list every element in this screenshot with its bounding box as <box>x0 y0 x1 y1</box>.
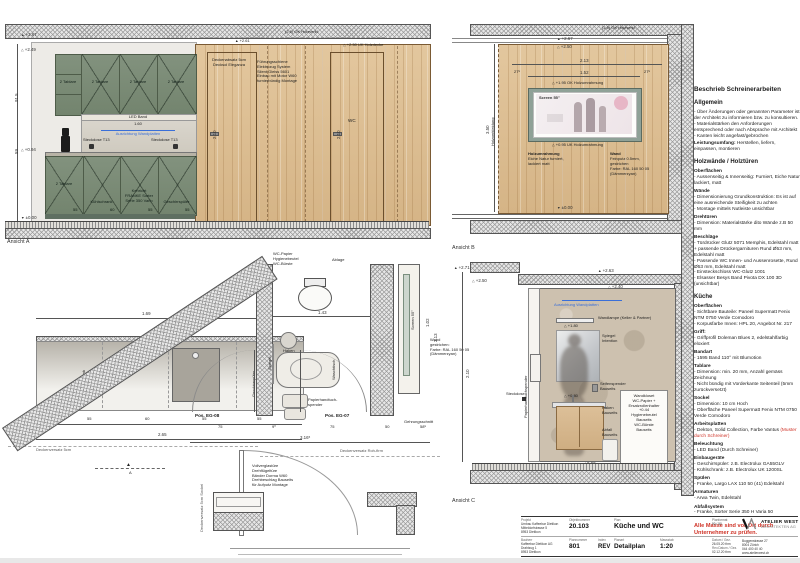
geschirrspueler-label: Geschirrspüler <box>158 200 195 205</box>
poster-circle-icon <box>614 96 628 110</box>
papierhandtuch-label: Papierhandtuchspender <box>524 376 529 418</box>
spec-title: Beschrieb Schreinerarbeiten <box>694 86 800 94</box>
address-line: www.atelierwest.ch <box>742 551 769 555</box>
address-line: 044 400 40 40 <box>742 547 769 551</box>
dim-chain <box>36 424 302 425</box>
ok-holzverkl-line <box>200 37 385 38</box>
abfall-label2: Bauseits <box>602 433 617 438</box>
ok-umrahmung-label: +1.95 OK Holzumrahmung <box>552 81 603 86</box>
titleblock-rule <box>521 556 798 557</box>
deckenversatz-roh-label: Deckenversatz Roh-firm <box>340 449 383 454</box>
plannumber-value: 801 <box>569 543 587 550</box>
dim-line-316 <box>190 442 430 443</box>
tablare-label: 2 Tablare <box>55 80 81 85</box>
date-value: 26.05.20 thm <box>712 542 737 546</box>
dim-55: 55 <box>185 208 189 213</box>
spec-line: - Kühlschrank: z.B. Electrolux UK 1200SL <box>694 468 800 474</box>
side-table-icon <box>280 332 297 349</box>
shelf-line <box>56 94 81 95</box>
wc-door-label: WC <box>348 118 356 123</box>
seg-585: 58⁵ <box>420 425 426 430</box>
level-000: ±0.00 <box>21 215 37 220</box>
spec-line: - Materialstärken den Anforderungen ents… <box>694 122 800 134</box>
wandlampe-label: Wandlampe (Keller & Partner) <box>598 316 651 321</box>
revdate-value: 02.12.20 thm <box>712 550 737 554</box>
seifenspender-label2: Bauseits <box>600 387 615 392</box>
door-note-line: furnierbündig Montage <box>257 79 297 84</box>
umrahmung-line3: lackiert matt <box>528 162 550 167</box>
view-ansicht-a: WC 2 Tablare 2 Tablare 2 Tablare 2 Tabla… <box>5 24 430 240</box>
dim-143: 1.43 <box>318 310 327 315</box>
vanity-cabinet <box>556 406 604 450</box>
dim-55: 55 <box>148 208 152 213</box>
sockel <box>45 214 195 219</box>
ceiling-hatch <box>470 262 520 273</box>
shelf-line <box>56 74 81 75</box>
door-leaf <box>254 350 255 412</box>
dim-213: 2.13 <box>580 58 589 63</box>
ok-holzverkl-label: (2.6) OK Holzverkl. <box>602 26 636 31</box>
poster-text-block <box>547 114 563 122</box>
tablare-label: 2 Tablare <box>81 80 119 85</box>
scale-block: Massstab 1:20 <box>660 538 674 550</box>
dim-275: 27⁵ <box>514 70 520 75</box>
waste-bin-icon <box>602 439 618 461</box>
spiegel-plan-label: Spiegel <box>268 357 273 370</box>
faucet-icon <box>192 352 199 359</box>
poster-figure-icon <box>574 102 582 132</box>
level-271: +2.71 <box>454 265 470 270</box>
project-line: 8953 Dietikon <box>521 530 565 534</box>
tablare-label: 2 Tablare <box>119 80 157 85</box>
plantitle-block: Plan Küche und WC <box>614 518 664 530</box>
ok-holzverkl-label: (2.6) OK Holzverkl. <box>285 30 319 35</box>
spec-line: - Geschirrspüler: z.B. Electrolux GA55GL… <box>694 462 800 468</box>
wc-note: WC-PapierHygienebeutelWC-Bürste <box>273 252 299 266</box>
spec-line: - Griffprofil Doleman Blues 2, edelstahl… <box>694 336 800 348</box>
coffee-machine-icon <box>61 136 70 152</box>
wc-wall-right <box>370 264 394 416</box>
papertowel-dispenser-icon <box>530 354 541 382</box>
counter-divider <box>168 342 169 408</box>
steckdose-label: Steckdose T13 <box>151 138 178 143</box>
direction-arrow-icon <box>562 300 622 301</box>
screen-plan-icon <box>403 274 410 376</box>
tablare-label: 2 Tablare <box>45 182 83 187</box>
plantitle-label: Plan <box>614 518 664 522</box>
dim-line-vertical <box>17 44 18 221</box>
client-line: Drahtzug 1 <box>521 546 565 550</box>
spec-line: - Elsasser Besys Band Pivota DX 100 3D (… <box>694 276 800 288</box>
sideboard-inner-line <box>216 497 261 507</box>
socket-icon <box>89 144 94 149</box>
floor-structure-hatch <box>5 228 431 239</box>
dim-102: 1.02 <box>425 318 430 327</box>
soap-dispenser-icon <box>592 384 598 392</box>
dim-210: 2.10 <box>212 130 217 139</box>
wall-corner-hatch <box>396 505 415 535</box>
seg-55: 55 <box>257 417 261 422</box>
floor-structure-hatch <box>470 470 694 484</box>
dim-316: 3.16⁵ <box>300 435 310 440</box>
spec-line: - Dimension: Materialstärke dito Wände z… <box>694 221 800 233</box>
seg-50: 50 <box>385 425 389 430</box>
coffee-machine-icon <box>62 128 69 136</box>
spec-line: - Arwa Twin, Edelstahl <box>694 496 800 502</box>
steckdose-label: Steckdose T13 <box>83 138 110 143</box>
door-leaf <box>300 350 301 412</box>
section-line <box>95 468 165 469</box>
index-value: REV <box>598 544 610 550</box>
cabinet-unit <box>83 156 121 214</box>
gehrungsschnitt-label: Gehrungsschnitt <box>404 420 433 425</box>
spec-line: - Oberfläche Paneel Supermatt Fenix NTM … <box>694 408 800 420</box>
holzverkleidung-label: Holzverkleidung <box>491 118 496 146</box>
spec-line: - Montage mittels Nutleiste unsichtbar <box>694 207 800 213</box>
screen-plan-label: Screen 55" <box>411 310 416 330</box>
dim-160: 1.60 <box>81 122 195 127</box>
date-block: Datum / Gez. 26.05.20 thm Rev.Datum / Ge… <box>712 538 737 554</box>
building-wall-strip <box>681 24 694 496</box>
haken-label2: Bauseits <box>602 411 617 416</box>
spec-blocks: Allgemein- Über Änderungen oder genannte… <box>694 100 800 538</box>
project-block: Projekt Umbau Kaffeebar DietikonMitteldo… <box>521 518 565 534</box>
glass-door-note-line: für Aufputz Montage <box>252 483 293 488</box>
view-floor-plan: Kühlschrank Geschirrspüler 2.11 1.69 27 … <box>0 252 452 558</box>
screen-size-label: Screen 55" <box>539 96 560 101</box>
client-line: 8953 Dietikon <box>521 550 565 554</box>
spec-line: - Dimension: min. 20 mm, Anzahl gemäss Z… <box>694 370 800 382</box>
spec-line: - Nicht bündig mit Vorderkante Seitentei… <box>694 382 800 394</box>
seg-75: 75 <box>330 425 334 430</box>
level-261: +2.61 <box>235 39 250 44</box>
spec-line: - Franke, Largo LAX 110 50 (41) Edelstah… <box>694 482 800 488</box>
plannumber-block: Plannummer 801 <box>569 538 587 550</box>
spec-line: - Passende WC Innen- und Aussenrosette, … <box>694 259 800 271</box>
door-swing-arc <box>300 350 367 412</box>
cabinet-unit <box>158 156 196 214</box>
section-marker-icon: ▲ <box>126 462 131 468</box>
project-line: Umbau Kaffeebar Dietikon <box>521 522 565 526</box>
seg-55: 55 <box>87 417 91 422</box>
spec-line: - Dimensionierung Grundkonstruktion: Es … <box>694 195 800 207</box>
poster-figure-icon <box>599 106 606 132</box>
uk-umrahmung-label: +0.95 UK Holzumrahmung <box>552 143 603 148</box>
level-267: +2.67 <box>557 36 573 41</box>
dim-152: 1.52 <box>580 70 589 75</box>
ceiling-hatch <box>518 274 694 285</box>
spec-line: - Über Änderungen oder genannten Paramet… <box>694 110 800 122</box>
address-line: 8004 Zürich <box>742 543 769 547</box>
plantype-block: Planart Detailplan <box>614 538 645 550</box>
plannumber-label: Plannummer <box>569 538 587 542</box>
dim-line-265 <box>36 439 302 440</box>
section-label-a: A <box>129 471 132 476</box>
level-250: +2.50 <box>472 278 487 283</box>
dim-55: 55 <box>73 208 77 213</box>
spec-line: Alle Masse sind vor Ort durch Unternehme… <box>694 523 800 538</box>
kehricht-label3: Serie 350 Vario <box>120 199 158 204</box>
dim-line-152 <box>528 76 640 77</box>
view-label-b: Ansicht B <box>452 245 475 251</box>
spec-line: Holzwände / Holztüren <box>694 159 800 166</box>
deckenversatz-line2 <box>260 456 440 457</box>
view-ansicht-b: Screen 55" +2.67 +2.50 (2.6) OK Holzverk… <box>452 24 685 254</box>
tablare-label: 2 Tablare <box>157 80 195 85</box>
seg-75: 75 <box>218 425 222 430</box>
spec-line: - Korpusfarbe Innen: HPL 20, Angebot Nr.… <box>694 322 800 328</box>
poster-figure-icon <box>586 98 595 132</box>
panel-seam <box>305 46 306 222</box>
spiegel-label2: Intention <box>602 339 617 344</box>
date-label: Datum / Gez. <box>712 538 737 542</box>
level-240: +2.40 <box>608 284 623 289</box>
level-249: +2.49 <box>21 47 36 52</box>
ausrichtung-label: Ausrichtung Wandplatten <box>554 303 599 308</box>
level-094: +0.94 <box>21 147 36 152</box>
revdate-label: Rev.Datum / Gez. <box>712 546 737 550</box>
spec-line: - Franke, Sorter Serie 350 H Varia 50 <box>694 510 800 516</box>
view-ansicht-c: Ausrichtung Wandplatten Wandlampe (Kelle… <box>452 258 692 508</box>
index-label: Index <box>598 538 610 542</box>
floor-line <box>452 214 667 219</box>
spec-line: - Kanten leicht angefast/gebrochen <box>694 134 800 140</box>
dim-915: 91.5 <box>14 93 19 102</box>
spec-line: - LED Band (Durch Schreiner) <box>694 448 800 454</box>
dim-60: 60 <box>110 208 114 213</box>
dim-line-213 <box>512 64 662 65</box>
level-000: ±0.00 <box>557 205 573 210</box>
view-label-a: Ansicht A <box>7 239 29 245</box>
view-label-c: Ansicht C <box>452 498 475 504</box>
ablage-label: Ablage <box>332 258 344 263</box>
dim-169: 1.69 <box>142 311 151 316</box>
seg-60: 60 <box>145 417 149 422</box>
tap-icon <box>572 395 574 402</box>
deckenabsatz-label2: Decksol Eleganza <box>203 63 255 68</box>
client-block: Bauherr Kaffeebar Dietikon AGDrahtzug 18… <box>521 538 565 554</box>
person-silhouette <box>560 346 588 398</box>
specification-column: Beschrieb Schreinerarbeiten Allgemein- Ü… <box>694 86 800 538</box>
vanity-divider <box>579 407 580 447</box>
spec-line: - Sichtbare Bauteile: Paneel Supermatt F… <box>694 310 800 322</box>
scale-value: 1:20 <box>660 543 674 550</box>
spec-line: - 1595 Band 110° mit Blumotion <box>694 356 800 362</box>
wand-line5: (Dämmerzyan) <box>610 172 636 177</box>
dim-line-169 <box>36 318 266 319</box>
drawing-sheet: WC 2 Tablare 2 Tablare 2 Tablare 2 Tabla… <box>0 0 800 563</box>
uk-holzdecke-label: +2.50 UK Holzdecke <box>343 43 383 48</box>
level-267: +2.67 <box>21 32 37 37</box>
dim-line-vertical <box>462 272 463 462</box>
panel-seam <box>397 46 398 222</box>
glass-door-note: VollverglastüreDrehflügeltüreBänder Dorm… <box>252 464 293 488</box>
project-line: Mitteldorfstrasse 5 <box>521 526 565 530</box>
cabinet-unit <box>120 156 159 214</box>
scale-label: Massstab <box>660 538 674 542</box>
client-label: Bauherr <box>521 538 565 542</box>
spec-line: Küche <box>694 294 800 301</box>
door-note: FührungsschieneElektrozug SystemSilent G… <box>257 60 297 84</box>
pos-eg08-label: Pos. EG-08 <box>195 413 219 418</box>
threshold-line <box>230 548 410 549</box>
ceiling-hatch <box>470 24 687 36</box>
deckenversatz-sockel-label: Deckenversatz 5cm Sockel <box>200 484 205 532</box>
address-line: Buggenstrasse 27 <box>742 539 769 543</box>
index-block: Index REV <box>598 538 610 550</box>
wandkloset-panel: WandklosetWC-Papier +Ersatzrollenhalter+… <box>620 390 668 469</box>
objectnumber-block: Objektnummer 20.103 <box>569 518 590 530</box>
spec-line: Leistungsumfang: Herstellen, liefern, ei… <box>694 141 800 153</box>
dim-line-143 <box>273 316 370 317</box>
plantype-value: Detailplan <box>614 543 645 550</box>
wandkloset-line: Bauseits <box>621 428 667 433</box>
objectnumber-value: 20.103 <box>569 523 590 530</box>
level-263: +2.63 <box>598 268 614 273</box>
sideboard-hatch <box>213 512 264 531</box>
pos-eg07-label: Pos. EG-07 <box>325 413 349 418</box>
spec-line: Allgemein <box>694 100 800 107</box>
seg-90: 9⁰ <box>272 425 276 430</box>
spec-line: - Aussenseitig & Innenseitig: Furniert, … <box>694 175 800 187</box>
wc-note-line: WC-Bürste <box>273 262 299 267</box>
dim-265: 2.65 <box>158 432 167 437</box>
plantitle-value: Küche und WC <box>614 523 664 530</box>
toilet-plan-icon <box>298 285 332 311</box>
objectnumber-label: Objektnummer <box>569 518 590 522</box>
plantype-label: Planart <box>614 538 645 542</box>
project-label: Projekt <box>521 518 565 522</box>
dim-210: 2.10 <box>465 369 470 378</box>
level-250: +2.50 <box>557 44 572 49</box>
level-180: +1.80 <box>564 324 578 329</box>
socket-icon <box>173 144 178 149</box>
client-line: Kaffeebar Dietikon AG <box>521 542 565 546</box>
dim-59: 59 <box>14 149 19 154</box>
threshold-line <box>238 554 402 555</box>
spec-line: - Dekton, Solid Collection, Farbe Vantus… <box>694 428 800 440</box>
kuehlschrank-label: Kühlschrank <box>83 200 120 205</box>
deckenversatz-label: Deckenversatz 5cm <box>36 448 71 453</box>
page-edge <box>0 558 800 563</box>
architect-address: Buggenstrasse 278004 Zürich044 400 40 40… <box>742 539 769 556</box>
spec-line: - Türdrücker Glutz 5071 Memphis, Edelsta… <box>694 241 800 259</box>
level-080: +0.80 <box>564 394 578 399</box>
dim-210: 2.10 <box>336 130 341 139</box>
dim-275: 27⁵ <box>644 70 650 75</box>
floor-structure-hatch <box>470 220 687 234</box>
